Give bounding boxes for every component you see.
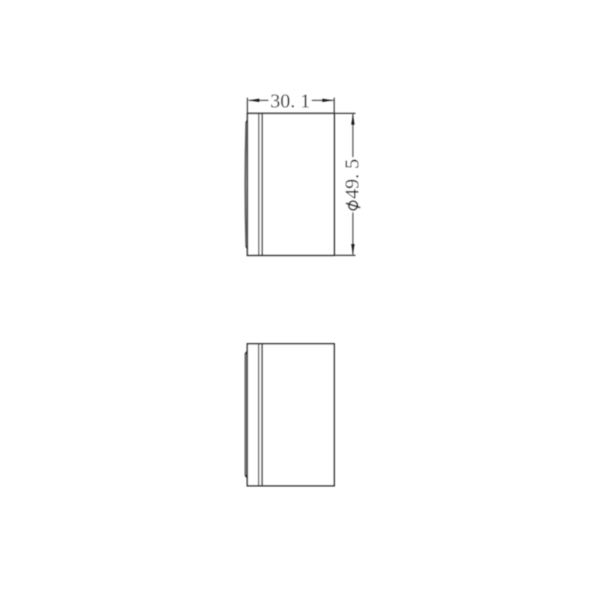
svg-text:49. 5: 49. 5: [342, 159, 364, 199]
svg-text:30. 1: 30. 1: [270, 90, 310, 112]
